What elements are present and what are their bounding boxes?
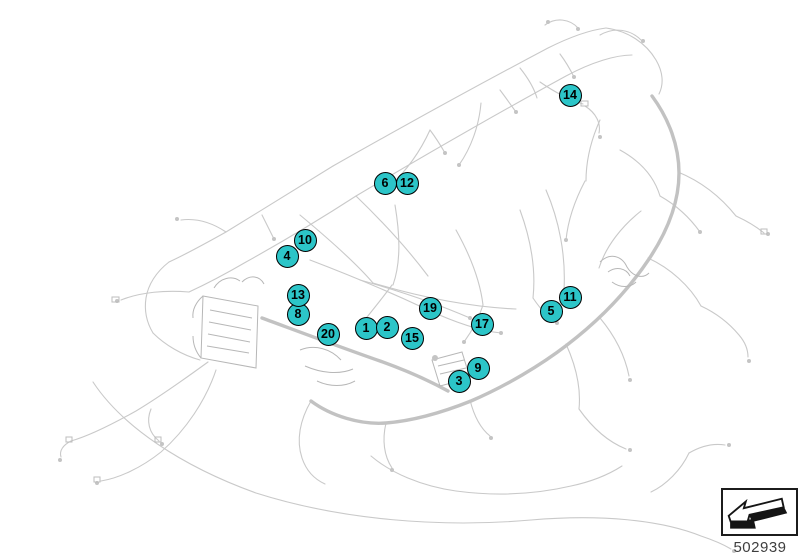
callout-label: 15 [405,332,419,345]
callout-2[interactable]: 2 [376,316,399,339]
callout-label: 2 [384,321,391,334]
direction-stamp-box [721,488,798,536]
callout-layer: 12345689101112131415171920 [0,0,800,560]
arrow-down-left-3d-icon [723,490,796,534]
callout-11[interactable]: 11 [559,286,582,309]
callout-label: 19 [423,302,437,315]
callout-label: 12 [400,177,414,190]
callout-label: 14 [563,89,577,102]
callout-label: 4 [284,250,291,263]
callout-label: 6 [382,177,389,190]
diagram-page: 12345689101112131415171920 502939 [0,0,800,560]
callout-20[interactable]: 20 [317,323,340,346]
callout-label: 8 [295,308,302,321]
callout-19[interactable]: 19 [419,297,442,320]
callout-17[interactable]: 17 [471,313,494,336]
callout-14[interactable]: 14 [559,84,582,107]
callout-6[interactable]: 6 [374,172,397,195]
callout-label: 9 [475,362,482,375]
callout-label: 17 [475,318,489,331]
callout-label: 20 [321,328,335,341]
callout-label: 13 [291,289,305,302]
callout-5[interactable]: 5 [540,300,563,323]
callout-label: 11 [563,291,576,304]
callout-4[interactable]: 4 [276,245,299,268]
callout-label: 10 [298,234,312,247]
callout-12[interactable]: 12 [396,172,419,195]
callout-label: 1 [363,322,370,335]
callout-10[interactable]: 10 [294,229,317,252]
callout-1[interactable]: 1 [355,317,378,340]
callout-label: 3 [456,375,463,388]
callout-9[interactable]: 9 [467,357,490,380]
callout-label: 5 [548,305,555,318]
callout-15[interactable]: 15 [401,327,424,350]
callout-13[interactable]: 13 [287,284,310,307]
diagram-number: 502939 [710,539,800,556]
